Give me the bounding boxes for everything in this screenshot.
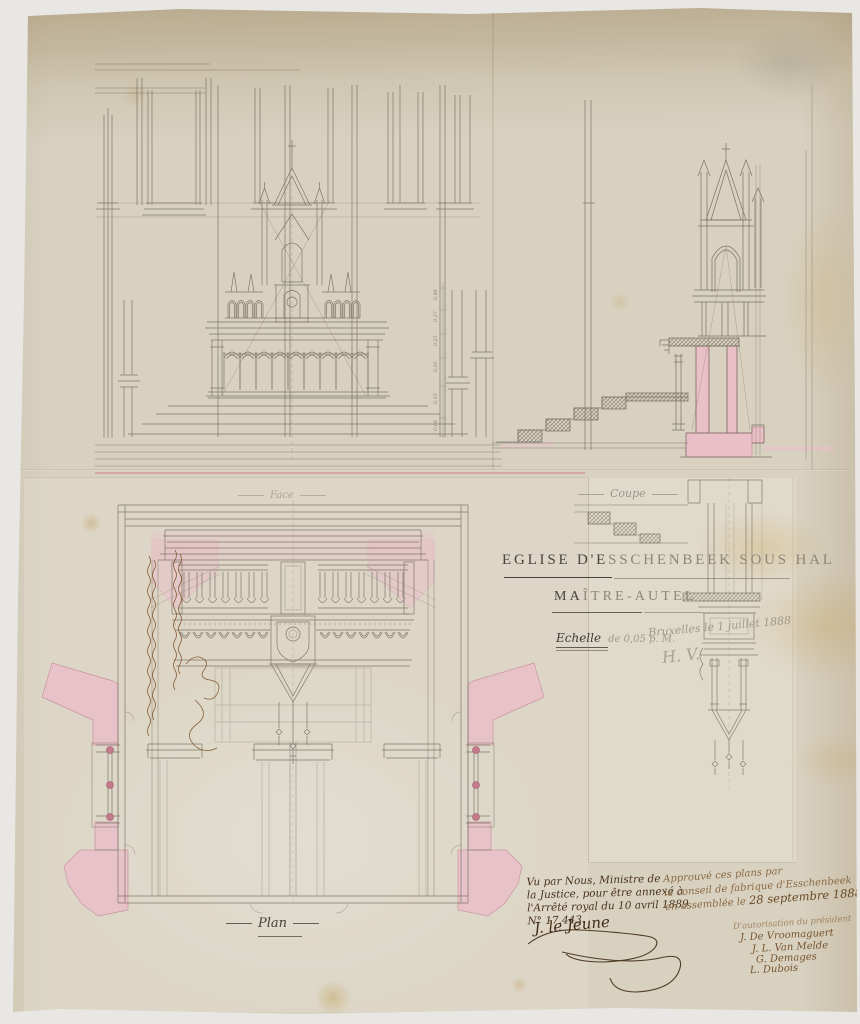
plan-view-linework xyxy=(92,500,494,913)
scale-underline-2 xyxy=(556,650,608,651)
label-dash xyxy=(578,494,604,495)
label-dash xyxy=(293,923,319,924)
subtitle-faint-part: ÎTRE-AUTEL xyxy=(583,589,697,604)
elevation-view-linework xyxy=(95,64,595,466)
subtitle-underline-faint xyxy=(644,612,702,613)
coupe-view-linework xyxy=(574,478,793,860)
title-faint-part: SSCHENBEEK SOUS HAL xyxy=(608,552,835,568)
plan-label-text: Plan xyxy=(258,916,287,931)
label-dash xyxy=(238,495,264,496)
drawing-sheet: 0,48 0,37 0,25 0,95 0,13 0,08 xyxy=(0,0,860,1024)
dimension-label: 0,08 xyxy=(433,420,439,431)
architect-signature: H. V. xyxy=(661,644,701,667)
dimension-label: 0,37 xyxy=(433,310,439,322)
plan-label-underline xyxy=(258,936,302,937)
scanned-drawing: 0,48 0,37 0,25 0,95 0,13 0,08 xyxy=(0,0,860,1024)
title-underline-dark xyxy=(504,577,612,578)
scale-label: Echelle xyxy=(556,631,601,645)
title-dark-part: EGLISE D'E xyxy=(502,552,608,568)
dimension-label: 0,13 xyxy=(433,393,439,404)
dimension-label: 0,25 xyxy=(433,335,439,346)
face-label-text: Face xyxy=(270,490,294,501)
side-section-linework xyxy=(492,85,812,470)
drawing-title: EGLISE D'ESSCHENBEEK SOUS HAL xyxy=(502,552,835,569)
dimension-labels: 0,48 0,37 0,25 0,95 0,13 0,08 xyxy=(433,289,439,431)
label-dash xyxy=(300,495,326,496)
coupe-label-text: Coupe xyxy=(610,487,646,500)
minister-signature-flourish xyxy=(528,930,681,992)
face-view-label: Face xyxy=(232,490,332,501)
subtitle-dark-part: MA xyxy=(554,589,583,604)
title-underline-faint xyxy=(614,578,790,579)
dimension-label: 0,48 xyxy=(433,289,439,300)
subtitle-underline-dark xyxy=(552,612,642,613)
label-dash xyxy=(652,494,678,495)
label-dash xyxy=(226,923,252,924)
scale-underline-1 xyxy=(556,647,608,648)
plan-view-label: Plan xyxy=(220,916,325,931)
coupe-view-label: Coupe xyxy=(572,487,684,500)
dimension-label: 0,95 xyxy=(433,361,439,372)
drawing-subtitle: MAÎTRE-AUTEL xyxy=(554,589,697,605)
